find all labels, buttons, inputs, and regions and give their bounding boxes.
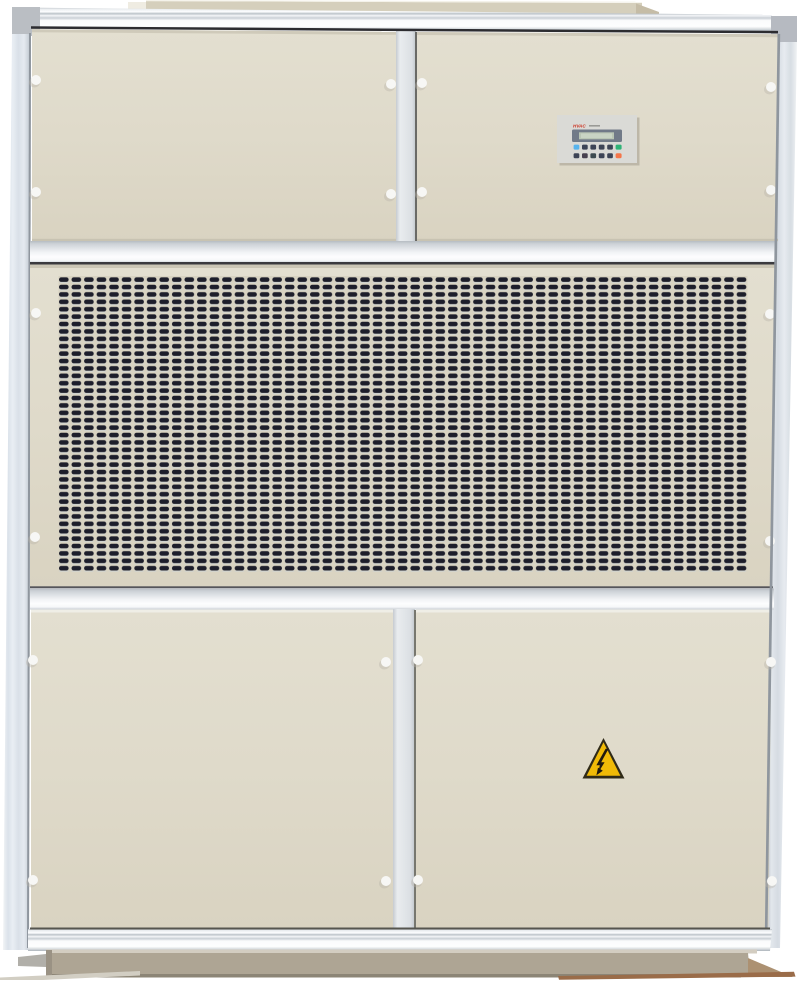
svg-text:HVAC: HVAC [573,124,586,129]
